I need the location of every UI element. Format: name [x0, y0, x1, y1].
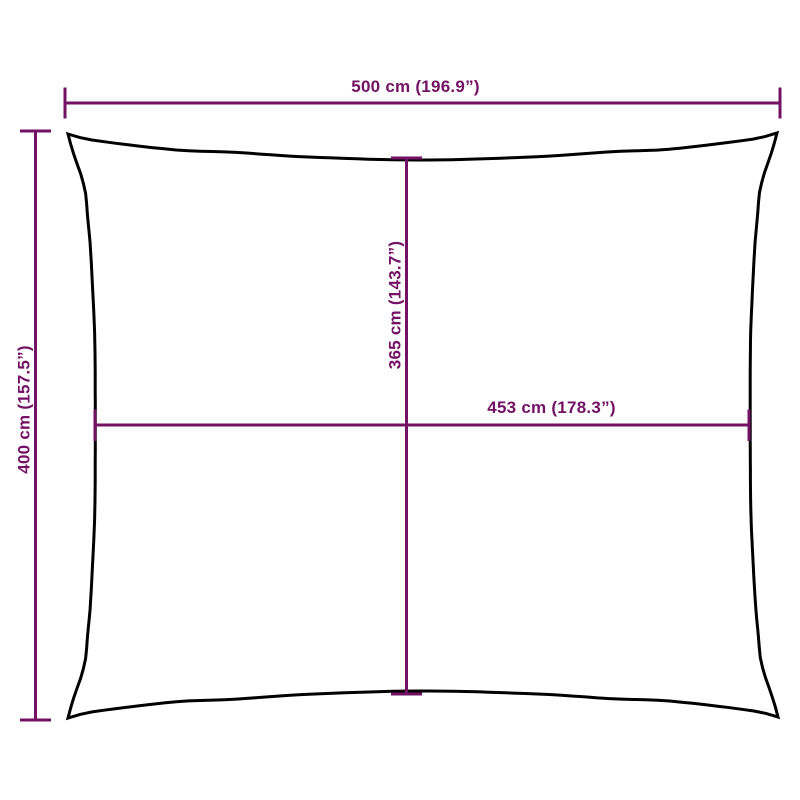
svg-text:365 cm (143.7”): 365 cm (143.7”) [385, 241, 404, 370]
svg-text:500 cm (196.9”): 500 cm (196.9”) [351, 77, 480, 96]
svg-text:453 cm (178.3”): 453 cm (178.3”) [487, 398, 616, 417]
svg-text:400 cm (157.5”): 400 cm (157.5”) [14, 345, 33, 474]
